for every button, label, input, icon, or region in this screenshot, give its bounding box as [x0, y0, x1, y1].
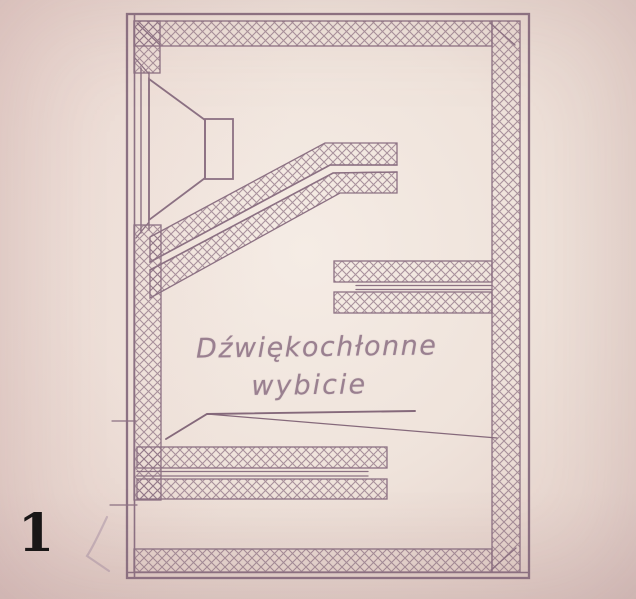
right-shelf-baffle [334, 261, 492, 313]
left-shelf-lower-lining [137, 479, 387, 499]
speaker-cone [149, 79, 205, 220]
bottom-wall-lining [134, 549, 492, 572]
scanned-figure-page: Dźwiękochłonne wybicie 1 [0, 0, 636, 599]
left-wall-lining [134, 21, 161, 500]
annotation-leader-lines [166, 411, 497, 439]
absorbing-lining-label-line1: Dźwiękochłonne [196, 330, 438, 364]
left-shelf-upper-lining [137, 447, 387, 468]
wall-tick-marks [110, 421, 137, 505]
figure-number: 1 [18, 503, 54, 564]
right-shelf-upper-lining [334, 261, 492, 282]
speaker-magnet [205, 119, 233, 179]
right-wall-lining [491, 21, 520, 572]
loudspeaker-enclosure-diagram [0, 0, 636, 599]
top-wall-lining [134, 21, 515, 46]
absorbing-lining-label-line2: wybicie [156, 365, 463, 407]
pencil-mark [87, 517, 109, 571]
absorbing-lining-label: Dźwiękochłonne wybicie [171, 327, 462, 407]
diagonal-baffle-upper-lining [150, 143, 397, 262]
right-shelf-lower-lining [334, 292, 492, 313]
left-shelf-baffle [137, 447, 387, 499]
